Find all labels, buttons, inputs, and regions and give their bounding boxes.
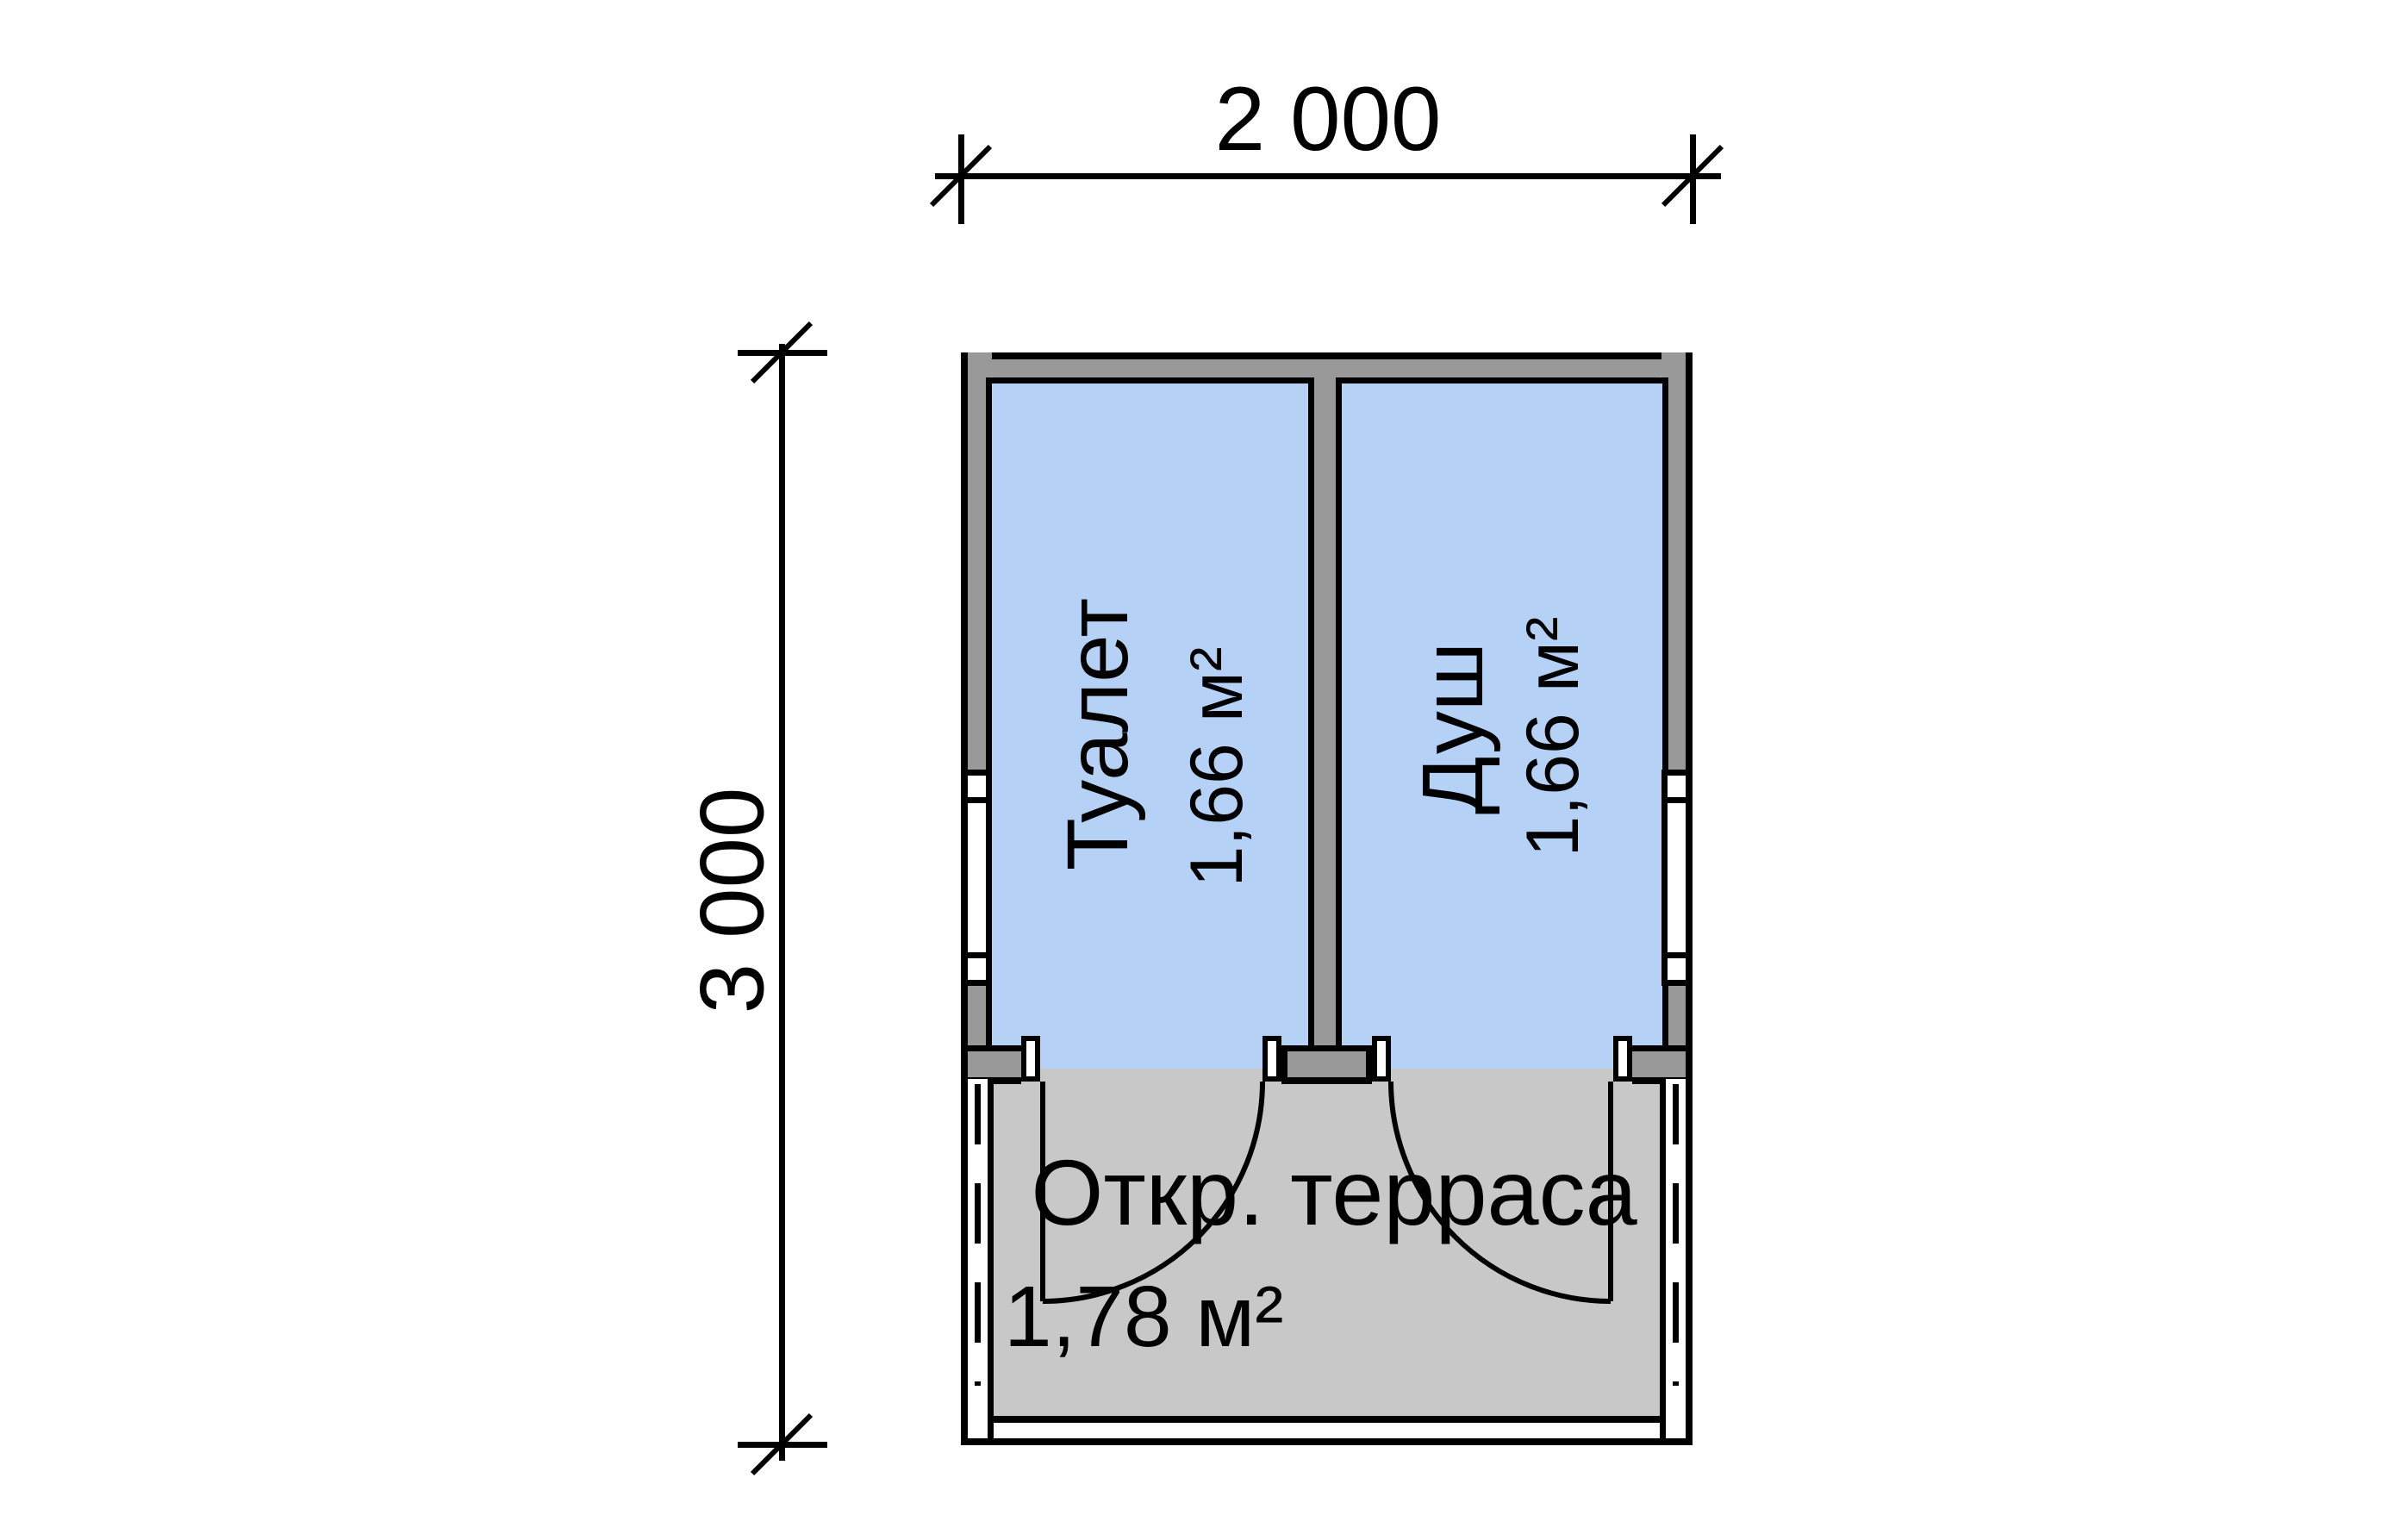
door-jamb	[1021, 1036, 1040, 1082]
room-toilet-area: 1,66 м²	[1180, 646, 1254, 887]
window-glazing-line	[1661, 770, 1668, 986]
room-toilet-label: Туалет	[1055, 598, 1141, 870]
terrace-rail-right	[1660, 1079, 1693, 1445]
dimension-label-width: 2 000	[1215, 74, 1442, 165]
wall-partition	[1308, 377, 1342, 1079]
floor-plan-canvas: 2 000 3 000	[0, 0, 2394, 1540]
window-left	[968, 770, 992, 986]
room-toilet	[986, 377, 1314, 1069]
terrace-rail-dashed-line	[975, 1084, 981, 1386]
window-right	[1661, 770, 1686, 986]
door-jamb	[1372, 1036, 1391, 1082]
wall-front-center-segment	[1281, 1045, 1372, 1084]
terrace-area-label: 1,78 м²	[1004, 1274, 1283, 1360]
door-jamb	[1262, 1036, 1281, 1082]
terrace-rail-bottom	[994, 1416, 1660, 1445]
terrace-rail-left	[961, 1079, 994, 1445]
dimension-label-height: 3 000	[688, 788, 778, 1014]
door-jamb	[1613, 1036, 1632, 1082]
window-glazing-line	[986, 770, 992, 986]
terrace-label: Откр. терраса	[1031, 1146, 1637, 1239]
room-shower-area: 1,66 м²	[1516, 616, 1590, 857]
room-shower-label: Душ	[1410, 642, 1496, 814]
dimension-line-width	[935, 173, 1721, 179]
room-shower	[1336, 377, 1668, 1069]
terrace-rail-dashed-line	[1673, 1084, 1679, 1386]
